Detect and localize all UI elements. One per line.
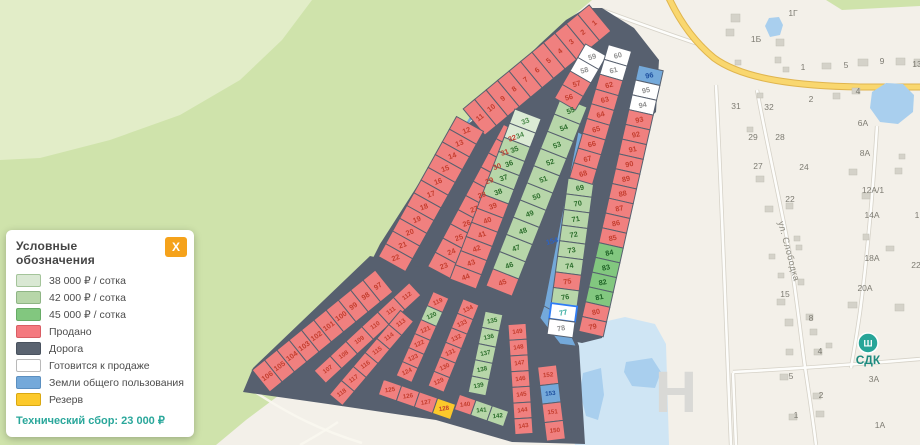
legend-panel: Условные обозначения X 38 000 ₽ / сотка4…	[6, 230, 194, 437]
house-number-label: 4	[856, 86, 861, 96]
plot-number-label: 140	[460, 401, 472, 409]
plot-number-label: 142	[492, 412, 504, 420]
plot-number-label: 151	[547, 408, 558, 416]
legend-item: Земли общего пользования	[16, 376, 184, 389]
building	[769, 254, 775, 259]
map-canvas[interactable]: 1234567891011121314151617181920212223242…	[0, 0, 920, 445]
building	[849, 169, 857, 175]
house-number-label: 27	[753, 161, 763, 171]
legend-title: Условные обозначения	[16, 239, 158, 267]
house-number-label: 1А	[875, 420, 886, 430]
building	[796, 245, 802, 250]
house-number-label: 2	[809, 94, 814, 104]
sdk-poi-label: СДК	[856, 353, 881, 367]
building	[899, 154, 905, 159]
plot-number-label: 72	[569, 229, 579, 239]
building	[783, 67, 789, 72]
legend-item: Резерв	[16, 393, 184, 406]
building	[777, 299, 785, 305]
house-number-label: 9	[880, 56, 885, 66]
plot-number-label: 146	[515, 375, 527, 383]
plot-number-label: 150	[549, 427, 560, 435]
legend-item: Дорога	[16, 342, 184, 355]
house-number-label: 5	[789, 371, 794, 381]
house-number-label: 22	[911, 260, 920, 270]
legend-item: 38 000 ₽ / сотка	[16, 274, 184, 287]
legend-item-label: Резерв	[49, 394, 83, 406]
house-number-label: 2	[819, 390, 824, 400]
plot-number-label: 78	[556, 323, 566, 333]
building	[822, 63, 831, 69]
building	[778, 273, 784, 278]
legend-swatch-icon	[16, 274, 41, 287]
building	[863, 234, 869, 240]
building	[895, 304, 904, 311]
house-number-label: 32	[764, 102, 774, 112]
legend-item-label: 45 000 ₽ / сотка	[49, 309, 126, 321]
house-number-label: 4	[818, 346, 823, 356]
house-number-label: 1	[915, 210, 920, 220]
house-number-label: 28	[775, 132, 785, 142]
legend-item-label: 38 000 ₽ / сотка	[49, 275, 126, 287]
house-number-label: 1	[794, 410, 799, 420]
plot-number-label: 143	[518, 422, 530, 430]
legend-item: Готовится к продаже	[16, 359, 184, 372]
plot-number-label: 148	[513, 343, 525, 351]
legend-item: Продано	[16, 325, 184, 338]
legend-footer-fee: Технический сбор: 23 000 ₽	[16, 414, 184, 427]
house-number-label: 13	[912, 59, 920, 69]
house-number-label: 1	[801, 62, 806, 72]
legend-item-label: Продано	[49, 326, 92, 338]
building	[757, 93, 763, 98]
legend-item-label: 42 000 ₽ / сотка	[49, 292, 126, 304]
building	[775, 57, 781, 63]
plot-number-label: 153	[545, 390, 556, 398]
house-number-label: 1Г	[788, 8, 798, 18]
plot-number-label: 76	[560, 292, 570, 302]
house-number-label: 6А	[858, 118, 869, 128]
building	[776, 39, 784, 46]
legend-swatch-icon	[16, 393, 41, 406]
legend-close-button[interactable]: X	[165, 237, 187, 257]
legend-items: 38 000 ₽ / сотка42 000 ₽ / сотка45 000 ₽…	[16, 274, 184, 406]
plot-number-label: 147	[514, 359, 526, 367]
house-number-label: 5	[844, 60, 849, 70]
plot-number-label: 73	[567, 245, 577, 255]
plot-number-label: 152	[543, 371, 554, 379]
legend-item-label: Готовится к продаже	[49, 360, 150, 372]
plot-number-label: 126	[402, 392, 414, 400]
building	[848, 302, 857, 308]
plot-number-label: 125	[384, 386, 396, 394]
building	[833, 93, 840, 99]
building	[731, 14, 740, 22]
building	[810, 329, 817, 335]
building	[826, 343, 832, 348]
plot-number-label: 69	[575, 183, 585, 193]
building	[785, 319, 793, 326]
house-number-label: 3А	[869, 374, 880, 384]
legend-item: 42 000 ₽ / сотка	[16, 291, 184, 304]
plot-number-label: 70	[573, 198, 583, 208]
building	[780, 374, 788, 380]
building	[896, 58, 905, 65]
plot-number-label: 144	[517, 406, 529, 414]
building	[726, 29, 734, 36]
sdk-poi-glyph: Ш	[863, 339, 872, 349]
legend-swatch-icon	[16, 291, 41, 304]
plot-number-label: 128	[438, 405, 450, 413]
house-number-label: 29	[748, 132, 758, 142]
legend-swatch-icon	[16, 342, 41, 355]
building	[858, 59, 868, 66]
building	[765, 206, 773, 212]
building	[735, 60, 741, 65]
building	[756, 176, 764, 182]
legend-swatch-icon	[16, 325, 41, 338]
house-number-label: 15	[780, 289, 790, 299]
legend-item-label: Земли общего пользования	[49, 377, 184, 389]
legend-item: 45 000 ₽ / сотка	[16, 308, 184, 321]
building	[895, 168, 902, 174]
house-number-label: 8А	[860, 148, 871, 158]
plot-number-label: 141	[476, 406, 488, 414]
house-number-label: 31	[731, 101, 741, 111]
plot-number-label: 127	[420, 398, 432, 406]
legend-swatch-icon	[16, 376, 41, 389]
house-number-label: 24	[799, 162, 809, 172]
house-number-label: 14А	[864, 210, 879, 220]
building	[794, 236, 800, 241]
plot-number-label: 75	[563, 276, 573, 286]
building	[816, 411, 824, 417]
house-number-label: 1Б	[751, 34, 762, 44]
house-number-label: 18А	[864, 253, 879, 263]
house-number-label: 8	[809, 313, 814, 323]
big-letter-label: Н	[655, 360, 697, 425]
house-number-label: 22	[785, 194, 795, 204]
plot-number-label: 71	[571, 214, 581, 224]
house-number-label: 12А/1	[862, 185, 884, 195]
building	[886, 246, 894, 251]
plot-number-label: 149	[512, 328, 524, 336]
legend-swatch-icon	[16, 359, 41, 372]
plot-number-label: 145	[516, 390, 528, 398]
legend-item-label: Дорога	[49, 343, 83, 355]
house-number-label: 20А	[857, 283, 872, 293]
plot-number-label: 77	[558, 307, 568, 317]
legend-swatch-icon	[16, 308, 41, 321]
building	[786, 349, 793, 355]
